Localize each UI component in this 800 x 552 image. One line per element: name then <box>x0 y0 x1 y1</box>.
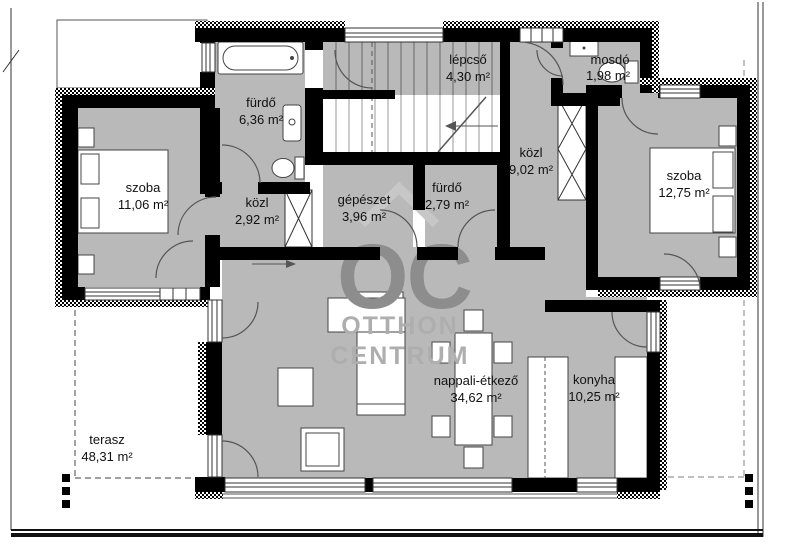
shaft-kozl1 <box>285 190 312 247</box>
wall <box>586 98 598 277</box>
wall <box>500 42 510 165</box>
mosdo-sink-drain <box>583 47 586 50</box>
room-label-furdo1-name: fürdő <box>246 95 276 110</box>
watermark-line2: CENTRUM <box>331 342 470 370</box>
pillow <box>81 154 99 184</box>
wall <box>305 152 500 165</box>
insulation-hatch <box>55 88 62 307</box>
room-label-nappali-name: nappali-étkező <box>434 373 519 388</box>
room-label-szoba1-name: szoba <box>126 180 161 195</box>
pillow <box>713 152 733 188</box>
window-living-left <box>225 478 365 492</box>
wall <box>206 342 222 435</box>
wall <box>647 300 660 312</box>
wall <box>417 247 458 260</box>
marker-dots-right <box>745 474 753 508</box>
wall <box>497 165 510 247</box>
floorplan-page: OC OTTHON CENTRUM <box>0 0 800 552</box>
ground-line-upper <box>11 529 763 531</box>
room-label-furdo2-name: fürdő <box>432 180 462 195</box>
insulation-hatch <box>750 78 757 297</box>
pillow <box>81 198 99 228</box>
insulation-hatch <box>57 300 210 307</box>
room-label-konyha-area: 10,25 m² <box>568 389 620 404</box>
wall <box>647 352 660 478</box>
room-label-kozl1-name: közl <box>245 195 268 210</box>
wall <box>586 85 622 98</box>
room-label-gepeszet-area: 3,96 m² <box>342 209 387 224</box>
insulation-hatch <box>640 78 757 85</box>
bathtub-faucet <box>290 56 294 60</box>
nightstand <box>719 126 736 146</box>
insulation-hatch <box>598 290 757 297</box>
dining-chair <box>464 447 483 468</box>
wall <box>413 165 425 210</box>
dining-chair <box>494 342 512 363</box>
insulation-hatch <box>195 21 345 28</box>
wall <box>512 478 577 492</box>
terrace-door-lower <box>208 435 222 477</box>
window-living-right <box>373 478 512 492</box>
washbasin <box>283 105 301 141</box>
room-label-kozl1-area: 2,92 m² <box>235 212 280 227</box>
insulation-hatch <box>57 88 215 95</box>
wall <box>200 182 222 194</box>
bathtub-inner <box>223 46 298 70</box>
wall <box>443 28 520 42</box>
toilet-bowl <box>272 159 294 178</box>
wall <box>495 247 545 260</box>
wall <box>200 28 215 43</box>
nightstand <box>78 128 94 147</box>
terrace-door-szoba1 <box>160 288 200 300</box>
window-stairs <box>345 28 443 42</box>
insulation-hatch <box>195 492 223 499</box>
wall <box>215 247 380 260</box>
watermark-line1: OTTHON <box>341 312 459 340</box>
toilet-tank <box>295 157 304 179</box>
wall <box>617 478 660 492</box>
room-label-mosdo-area: 1,98 m² <box>586 68 631 83</box>
dining-chair <box>494 416 512 437</box>
floor-stairs-lower <box>323 95 500 152</box>
wall <box>200 287 210 300</box>
nightstand <box>719 237 736 257</box>
armchair-cushion <box>306 433 339 466</box>
insulation-hatch <box>617 492 660 499</box>
sofa-arm <box>357 404 405 415</box>
wall <box>545 300 647 312</box>
entry-door-band <box>520 28 563 42</box>
room-label-szoba2-name: szoba <box>667 168 702 183</box>
kitchen-counter-left <box>528 357 568 478</box>
wall <box>586 277 660 290</box>
nightstand <box>78 255 94 274</box>
insulation-hatch <box>443 21 652 28</box>
terrace-door-upper <box>208 300 222 342</box>
window-szoba1-bottom <box>85 288 160 300</box>
kitchen-exterior-door <box>647 312 660 352</box>
wall <box>62 88 78 300</box>
room-label-konyha-name: konyha <box>573 372 616 387</box>
wall <box>551 78 563 93</box>
window-kitchen-bottom <box>577 478 617 492</box>
insulation-hatch <box>660 300 667 490</box>
room-label-terasz-name: terasz <box>89 432 124 447</box>
floorplan-canvas: OC OTTHON CENTRUM <box>0 0 800 552</box>
wall <box>563 28 652 42</box>
room-label-furdo2-area: 2,79 m² <box>425 197 470 212</box>
window-furdo1-left <box>202 43 215 72</box>
room-label-kozl2-name: közl <box>519 145 542 160</box>
room-label-szoba2-area: 12,75 m² <box>658 185 710 200</box>
wall <box>205 235 220 287</box>
wall <box>737 78 750 297</box>
marker-dots-left <box>62 474 70 508</box>
window-szoba2-top <box>660 85 700 98</box>
wall <box>57 95 215 108</box>
room-label-mosdo-name: mosdó <box>590 52 629 67</box>
wall <box>305 28 323 50</box>
open-area-topleft <box>57 20 207 88</box>
window-szoba2-bottom <box>660 277 700 290</box>
ground-line-lower <box>11 533 763 537</box>
insulation-hatch <box>198 342 206 435</box>
wall <box>258 182 310 194</box>
wall <box>195 477 225 492</box>
wall <box>700 277 750 290</box>
coffee-table <box>278 368 313 406</box>
wall <box>365 478 373 492</box>
room-label-nappali-area: 34,62 m² <box>450 390 502 405</box>
room-label-furdo1-area: 6,36 m² <box>239 112 284 127</box>
room-label-lepcso-area: 4,30 m² <box>446 69 491 84</box>
pillow <box>713 196 733 232</box>
dining-chair <box>432 416 450 437</box>
shaft-kozl2 <box>558 98 586 200</box>
room-label-kozl2-area: 9,02 m² <box>509 162 554 177</box>
room-label-lepcso-name: lépcső <box>449 52 487 67</box>
room-label-szoba1-area: 11,06 m² <box>118 197 169 212</box>
room-label-terasz-area: 48,31 m² <box>81 449 133 464</box>
room-label-gepeszet-name: gépészet <box>338 192 391 207</box>
kitchen-counter-right <box>615 357 647 478</box>
